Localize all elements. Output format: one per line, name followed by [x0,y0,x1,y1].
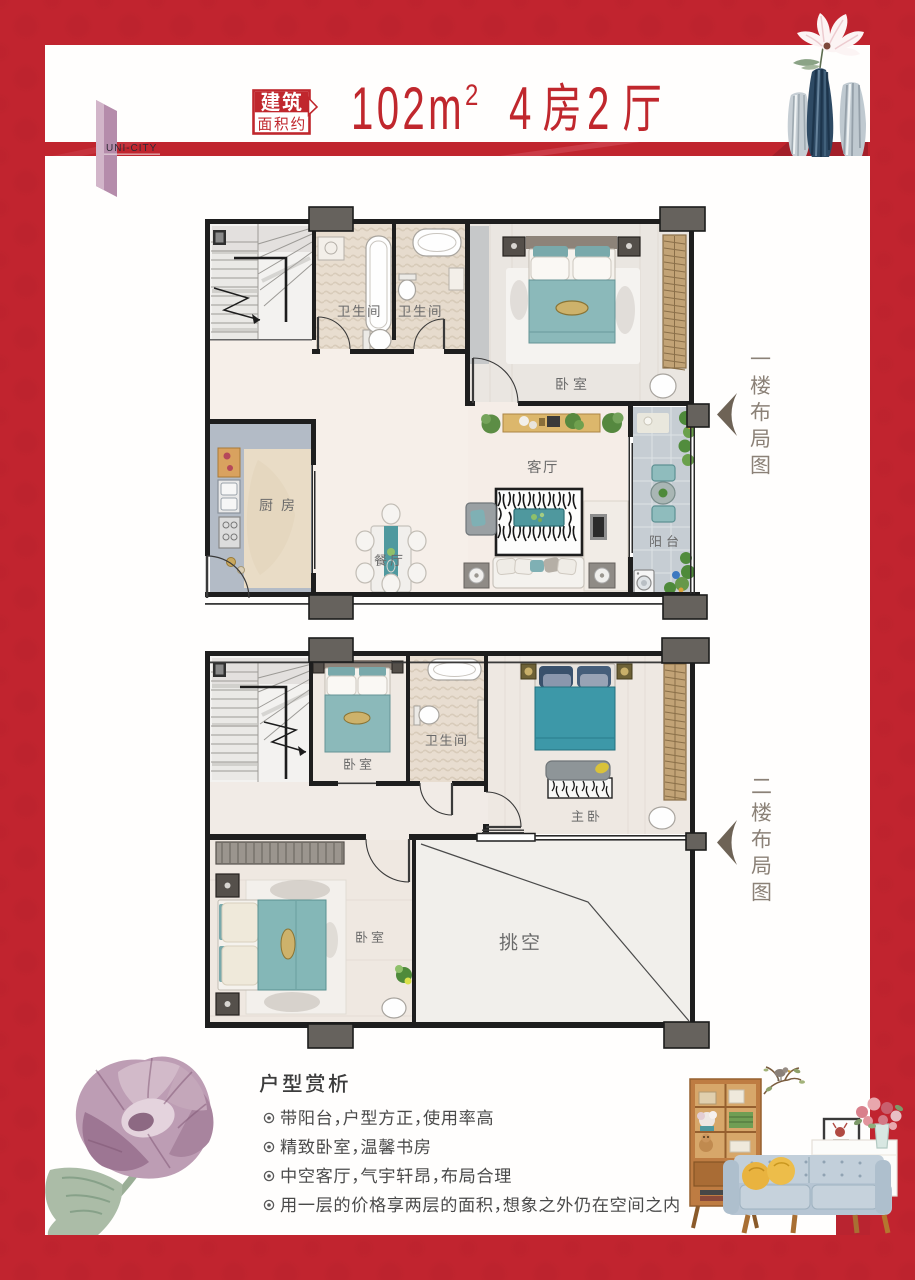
svg-text:102m: 102m [351,75,465,142]
svg-text:2: 2 [587,75,609,142]
svg-text:4: 4 [509,75,531,142]
svg-text:UNI-CITY: UNI-CITY [106,143,157,154]
svg-text:2: 2 [465,77,478,111]
